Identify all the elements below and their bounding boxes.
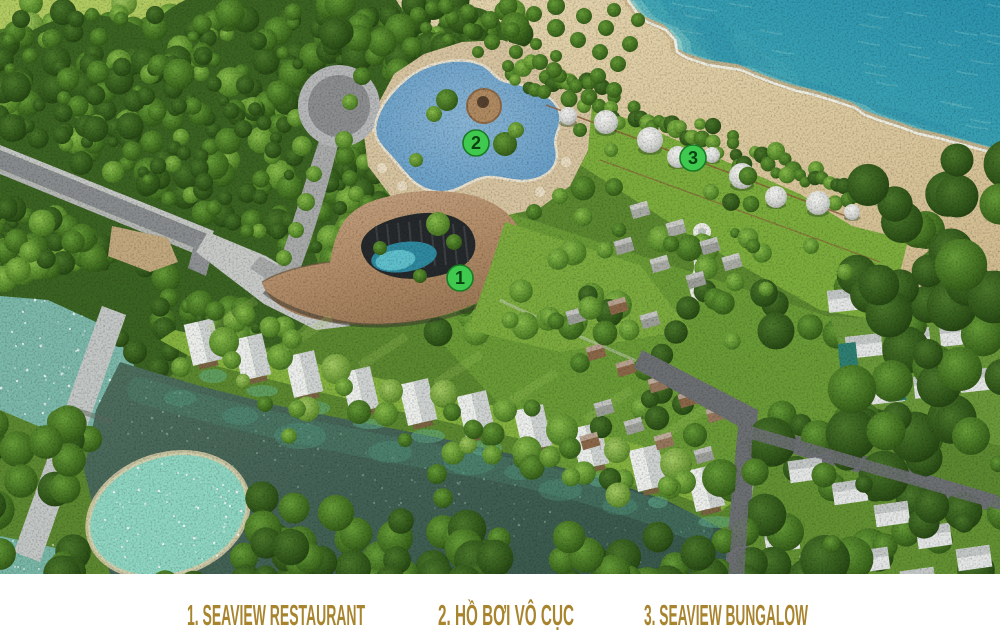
svg-text:1. SEAVIEW RESTAURANT: 1. SEAVIEW RESTAURANT [187, 600, 365, 632]
svg-text:2. HỒ BƠI VÔ CỤC: 2. HỒ BƠI VÔ CỤC [438, 598, 574, 632]
svg-text:2: 2 [471, 133, 481, 153]
svg-text:3: 3 [688, 148, 698, 168]
svg-text:3. SEAVIEW BUNGALOW: 3. SEAVIEW BUNGALOW [644, 600, 808, 632]
svg-text:1: 1 [455, 268, 465, 288]
